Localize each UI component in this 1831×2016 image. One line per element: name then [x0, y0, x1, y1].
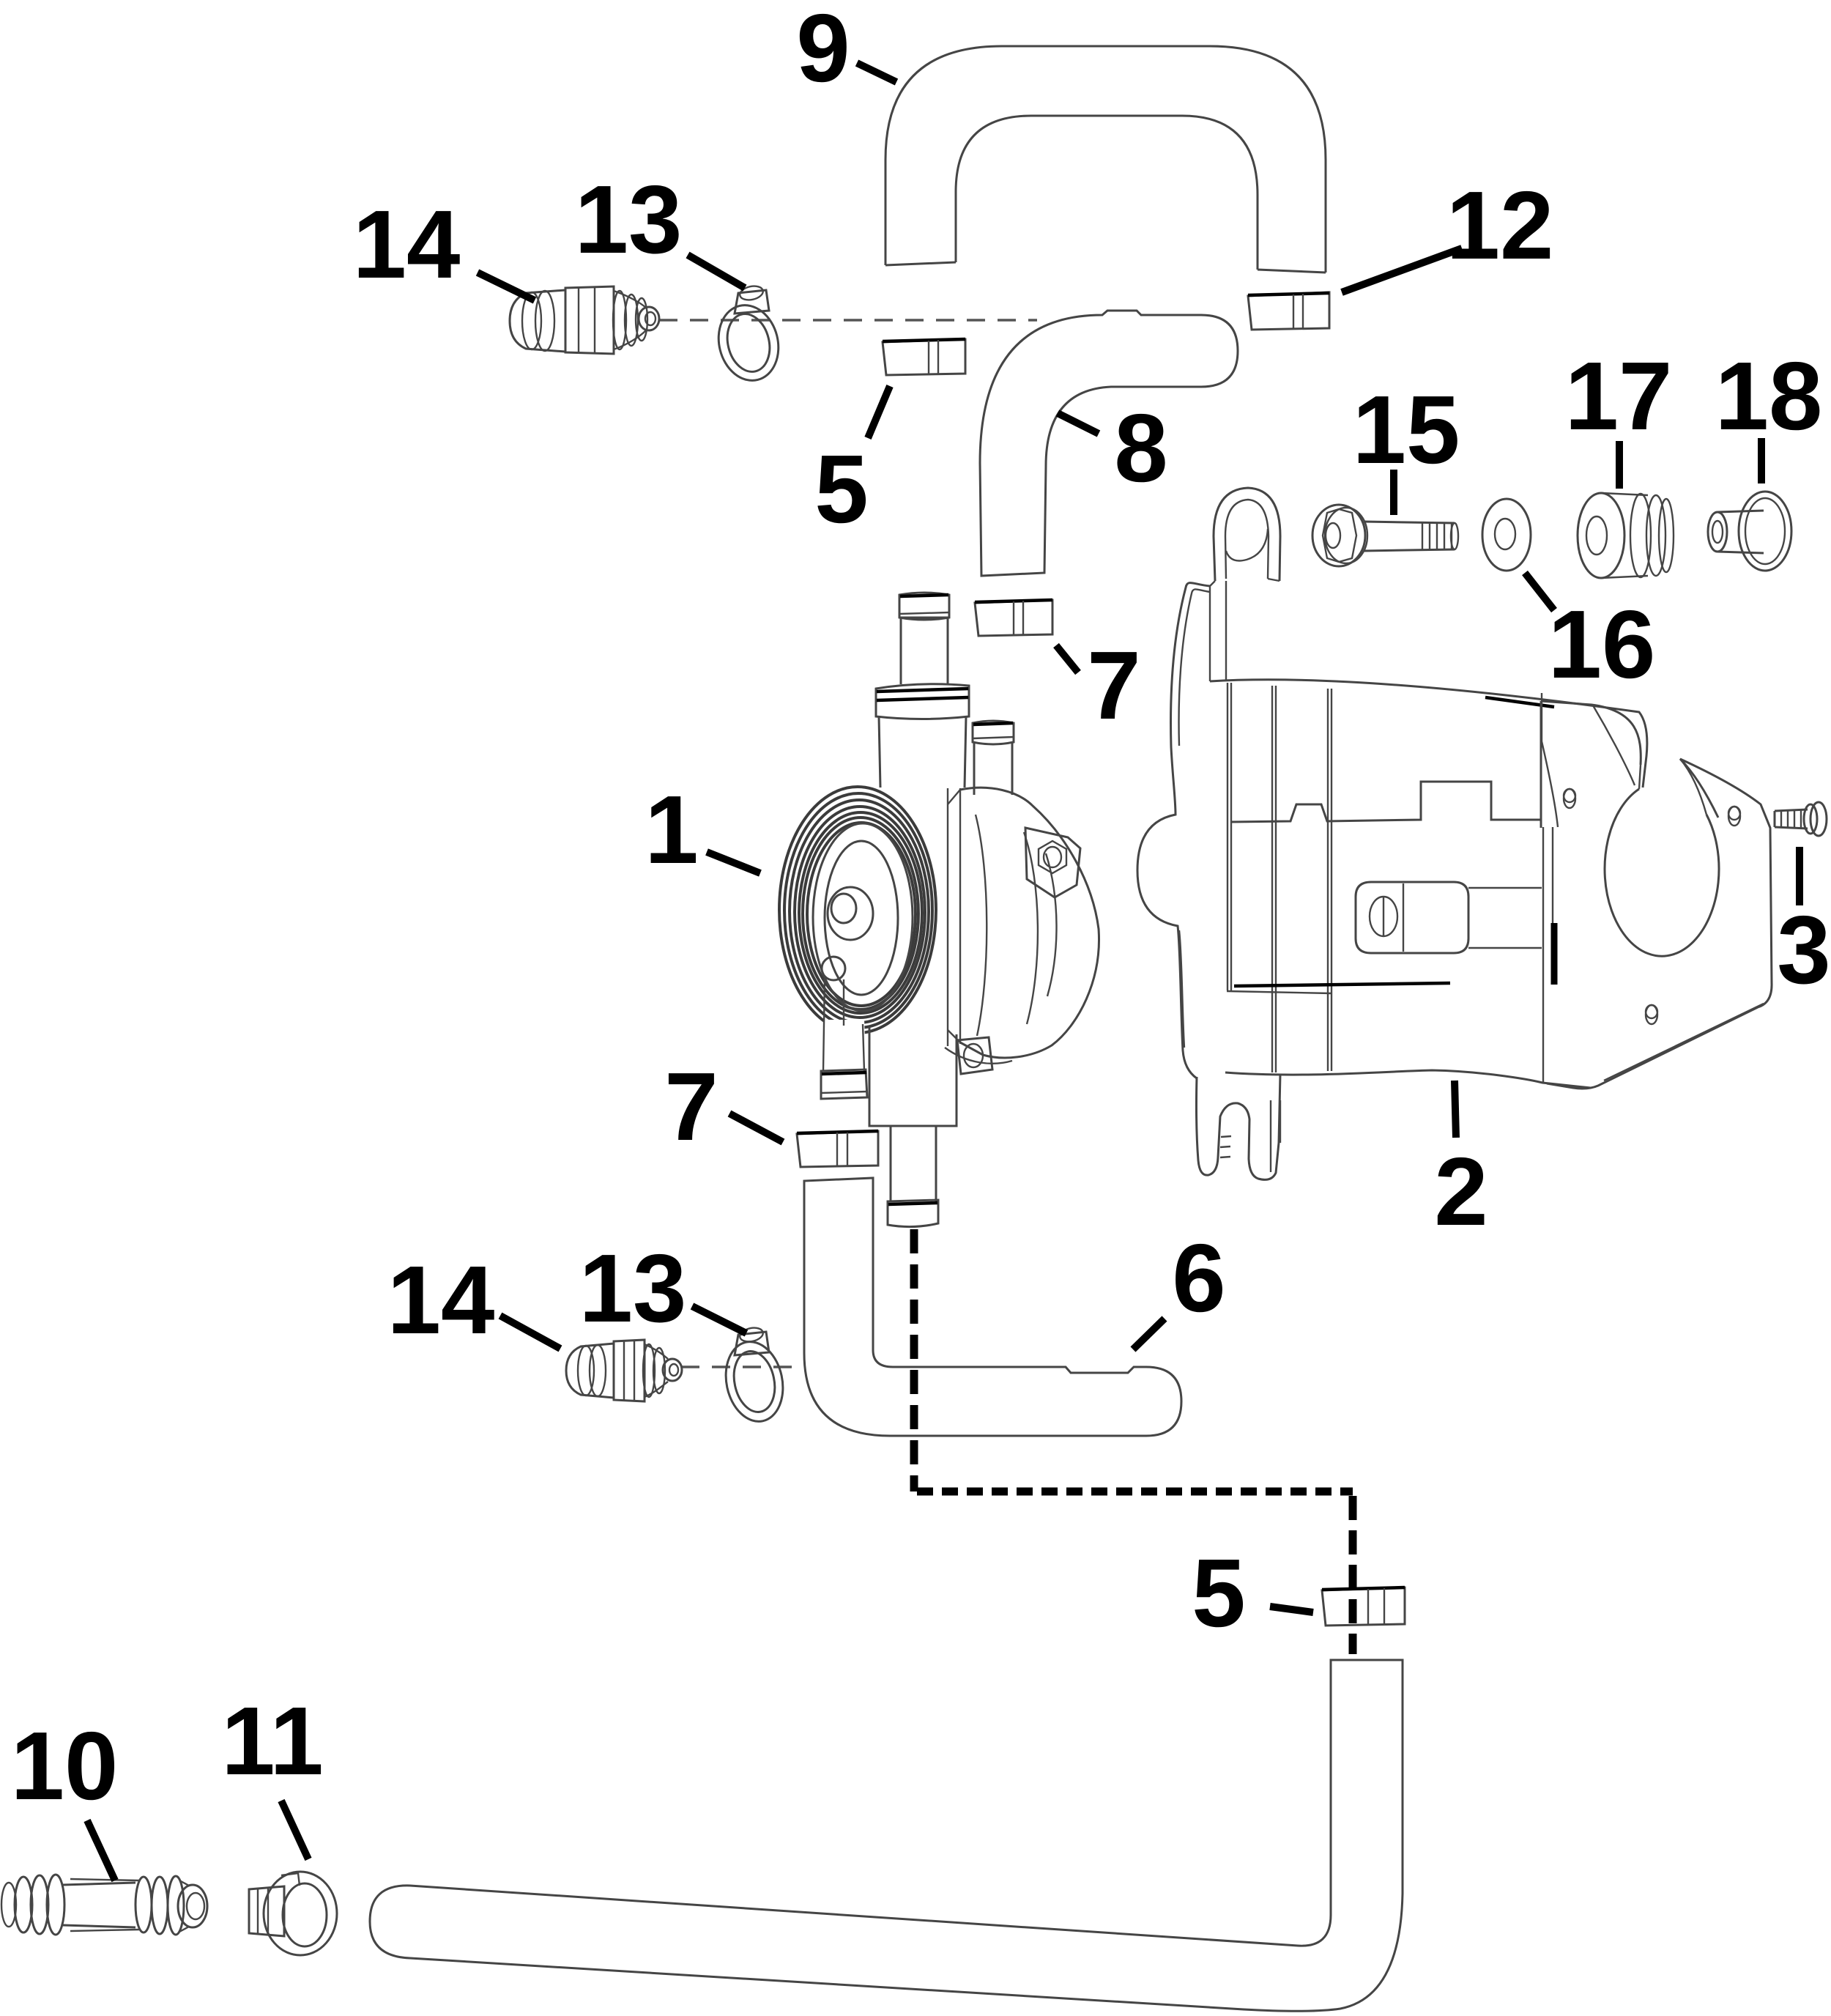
svg-text:11: 11: [221, 1687, 324, 1795]
svg-text:7: 7: [1087, 631, 1140, 739]
svg-text:16: 16: [1548, 590, 1656, 698]
svg-text:1: 1: [645, 776, 698, 883]
svg-text:8: 8: [1114, 394, 1167, 502]
svg-text:6: 6: [1172, 1224, 1225, 1332]
svg-text:14: 14: [387, 1246, 495, 1354]
svg-text:9: 9: [796, 0, 850, 102]
svg-text:5: 5: [1192, 1539, 1245, 1647]
svg-text:3: 3: [1777, 896, 1830, 1004]
svg-text:17: 17: [1565, 342, 1673, 450]
svg-text:18: 18: [1715, 342, 1823, 450]
svg-text:15: 15: [1353, 376, 1460, 483]
svg-text:10: 10: [11, 1712, 119, 1820]
svg-text:14: 14: [353, 190, 461, 298]
svg-text:13: 13: [579, 1234, 687, 1342]
svg-text:5: 5: [814, 435, 868, 543]
svg-text:2: 2: [1434, 1138, 1488, 1245]
svg-text:12: 12: [1446, 171, 1554, 279]
svg-text:13: 13: [575, 166, 683, 273]
svg-text:7: 7: [664, 1053, 718, 1160]
